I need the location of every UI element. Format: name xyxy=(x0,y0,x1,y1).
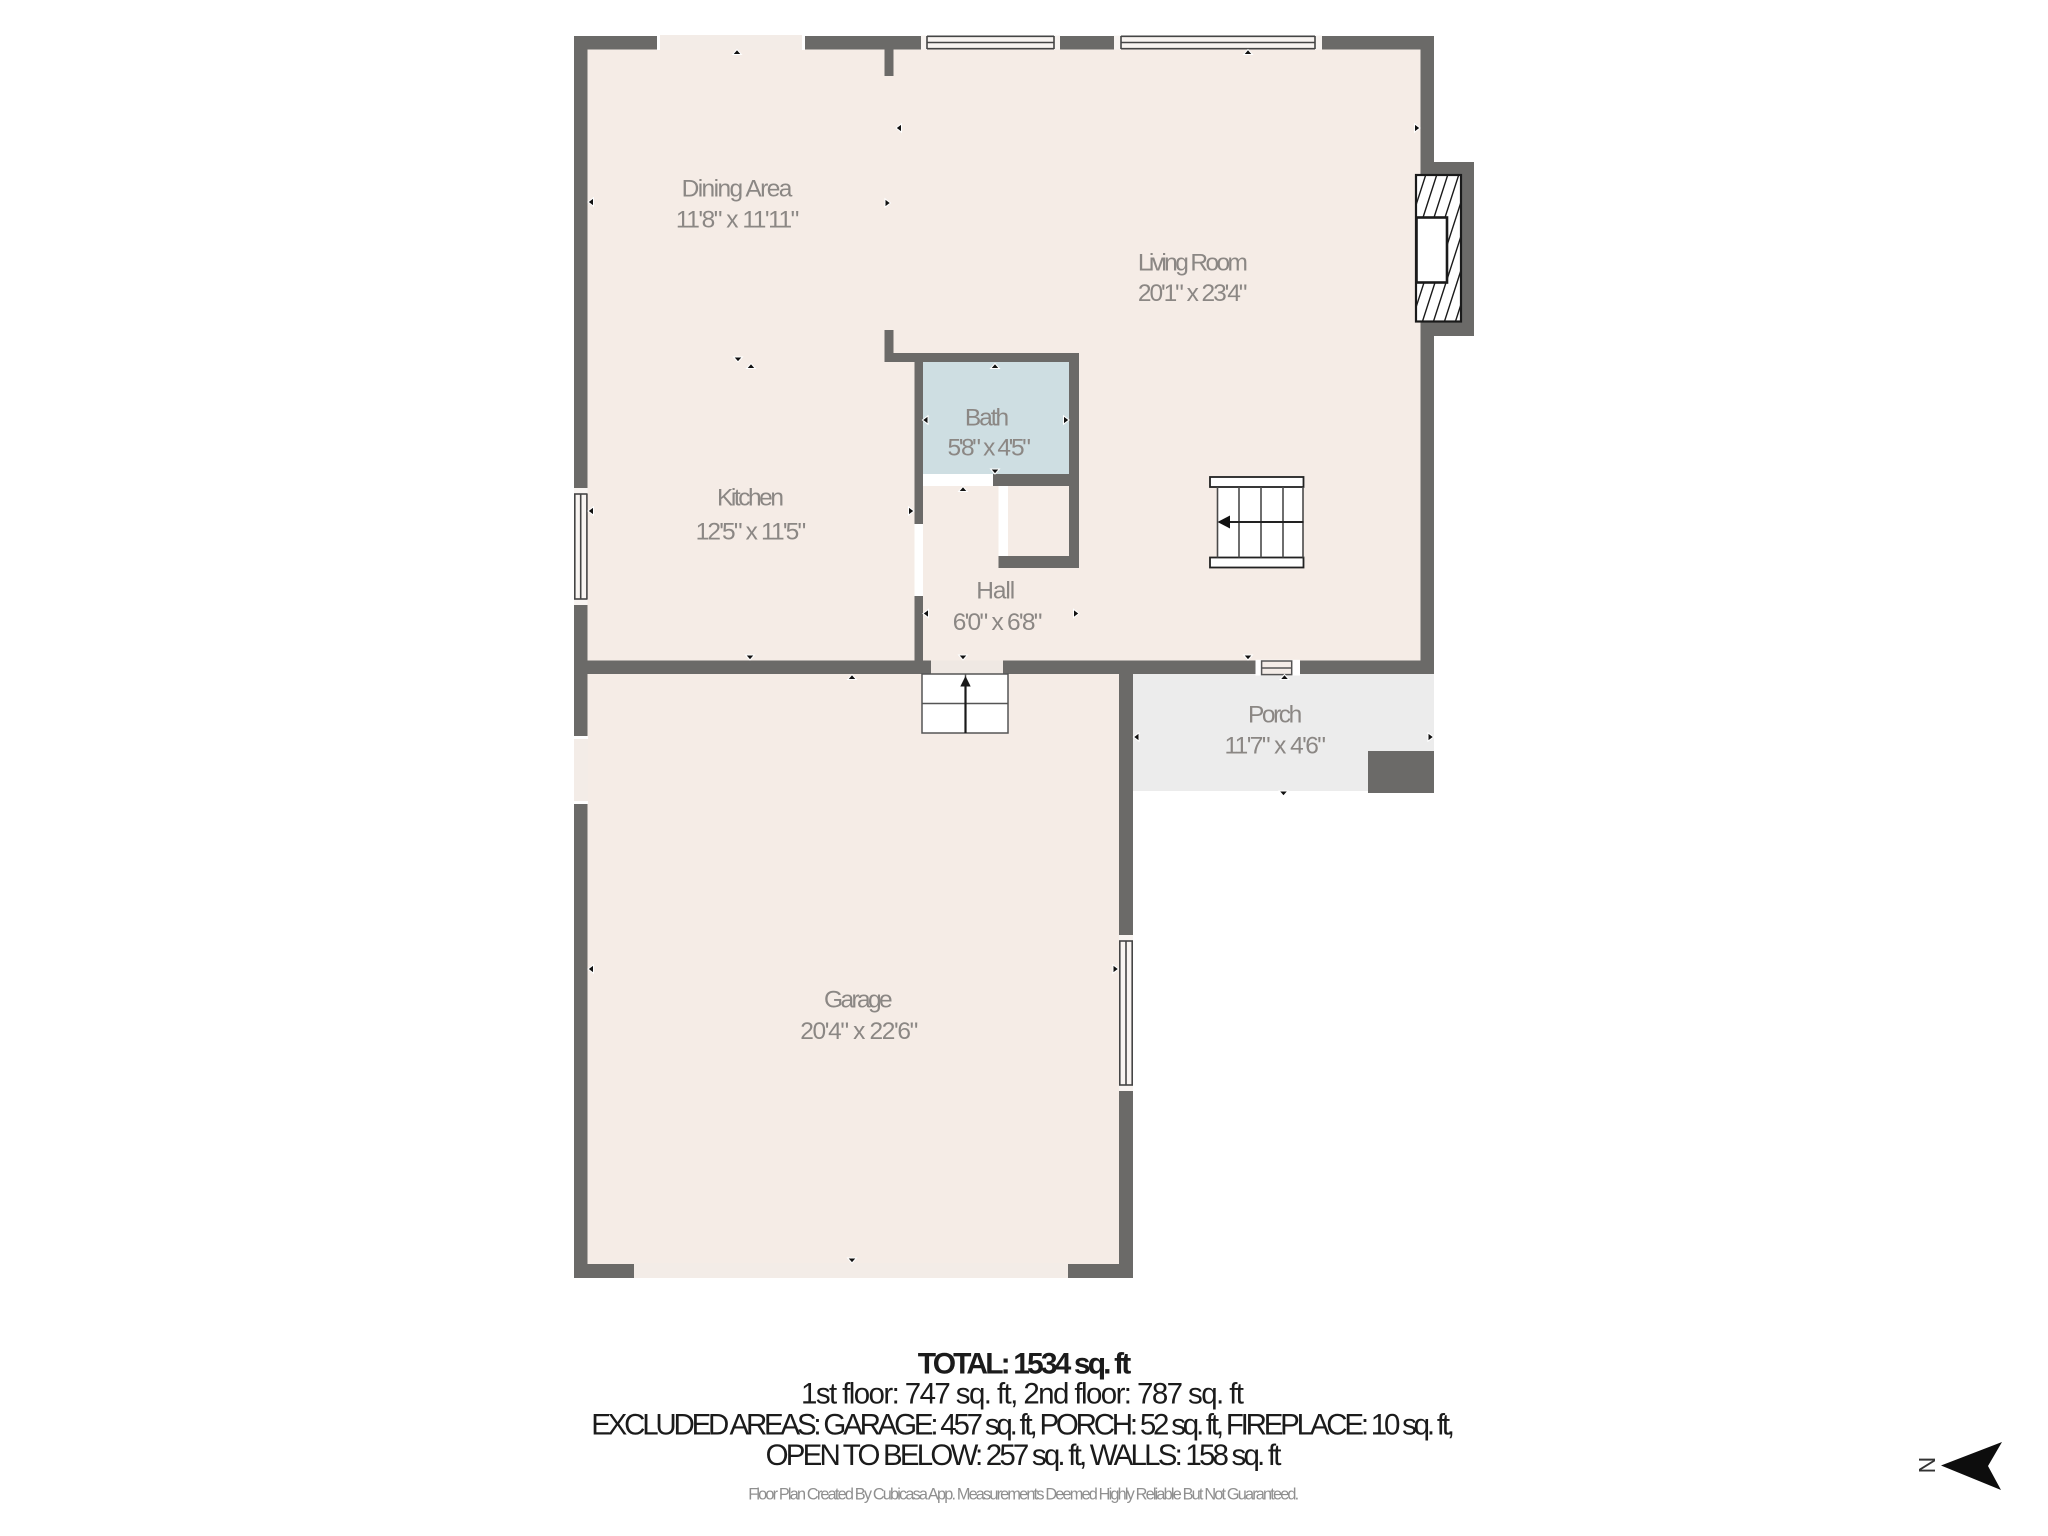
svg-text:11'7" x 4'6": 11'7" x 4'6" xyxy=(1224,733,1325,760)
svg-text:Floor Plan Created By Cubicasa: Floor Plan Created By Cubicasa App. Meas… xyxy=(748,1486,1299,1504)
svg-text:Porch: Porch xyxy=(1248,701,1302,728)
svg-text:Kitchen: Kitchen xyxy=(717,484,783,511)
svg-text:Bath: Bath xyxy=(965,404,1009,431)
svg-text:Hall: Hall xyxy=(976,577,1014,604)
svg-text:TOTAL: 1534 sq. ft: TOTAL: 1534 sq. ft xyxy=(918,1347,1131,1380)
svg-text:EXCLUDED AREAS: GARAGE: 457 sq: EXCLUDED AREAS: GARAGE: 457 sq. ft, PORC… xyxy=(591,1408,1455,1441)
svg-text:20'1" x 23'4": 20'1" x 23'4" xyxy=(1138,280,1247,307)
svg-text:6'0" x 6'8": 6'0" x 6'8" xyxy=(953,609,1042,636)
svg-text:OPEN TO BELOW: 257 sq. ft, WAL: OPEN TO BELOW: 257 sq. ft, WALLS: 158 sq… xyxy=(766,1439,1282,1472)
svg-text:20'4" x 22'6": 20'4" x 22'6" xyxy=(800,1018,918,1045)
svg-text:Garage: Garage xyxy=(824,986,892,1013)
svg-text:5'8" x 4'5": 5'8" x 4'5" xyxy=(947,434,1030,461)
svg-text:N: N xyxy=(1914,1457,1940,1474)
svg-text:Living Room: Living Room xyxy=(1138,249,1247,276)
svg-text:Dining Area: Dining Area xyxy=(682,175,793,202)
svg-text:11'8" x 11'11": 11'8" x 11'11" xyxy=(676,206,799,233)
svg-text:12'5" x 11'5": 12'5" x 11'5" xyxy=(696,518,806,545)
svg-text:1st floor: 747 sq. ft, 2nd flo: 1st floor: 747 sq. ft, 2nd floor: 787 sq… xyxy=(801,1378,1244,1411)
